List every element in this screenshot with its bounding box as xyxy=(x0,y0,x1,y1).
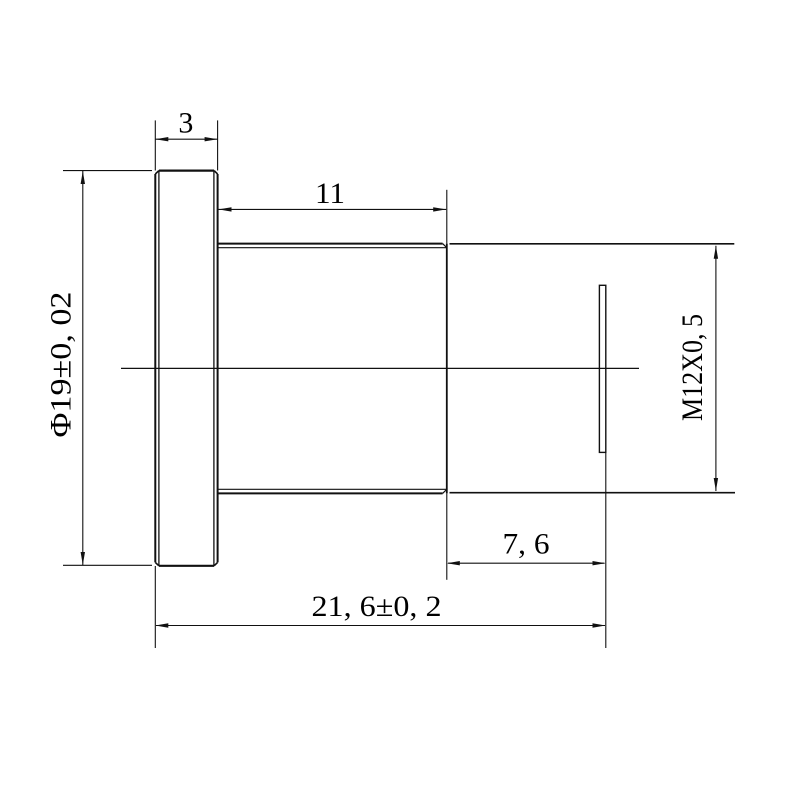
svg-text:11: 11 xyxy=(315,177,345,210)
svg-text:21, 6±0, 2: 21, 6±0, 2 xyxy=(312,590,442,623)
svg-text:M12X0, 5: M12X0, 5 xyxy=(676,314,709,421)
svg-text:7, 6: 7, 6 xyxy=(503,528,550,561)
svg-text:Φ19±0, 02: Φ19±0, 02 xyxy=(45,292,78,438)
svg-text:3: 3 xyxy=(178,106,193,139)
